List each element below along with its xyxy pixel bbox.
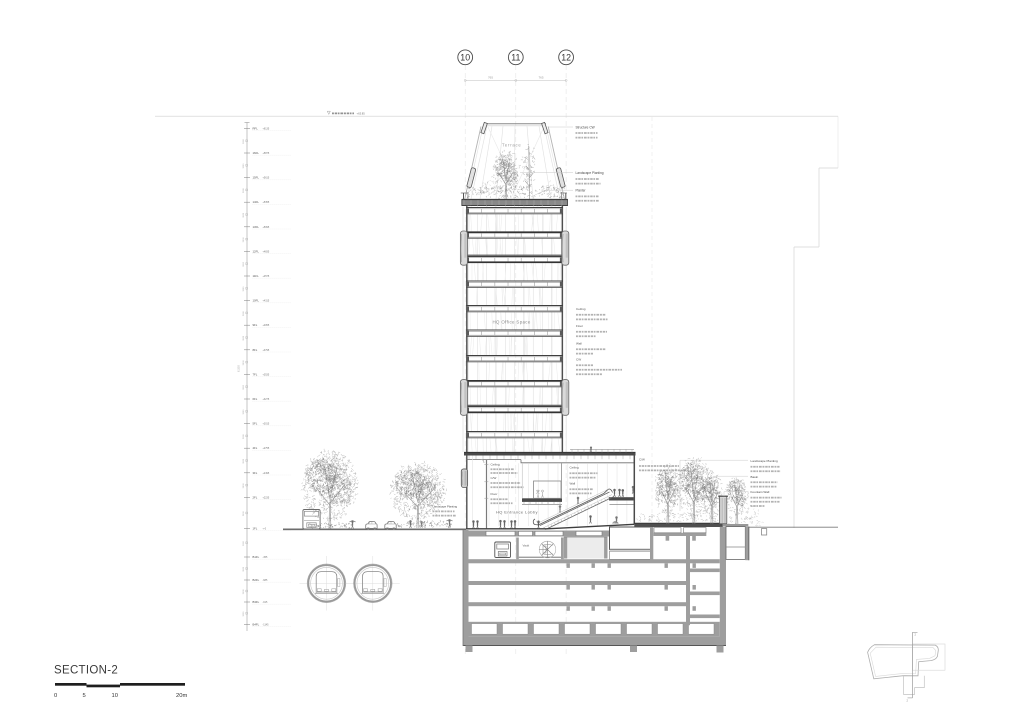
svg-text:Landscape Planting: Landscape Planting [751, 459, 778, 463]
svg-text:3600: 3600 [243, 589, 245, 595]
svg-text:61350: 61350 [238, 365, 241, 372]
svg-text:3600: 3600 [243, 611, 245, 617]
svg-text:Ceiling: Ceiling [570, 466, 580, 470]
svg-text:1FL: 1FL [253, 527, 258, 531]
svg-text:HQ Entrance Lobby: HQ Entrance Lobby [496, 510, 538, 515]
svg-text:B1FL: B1FL [253, 555, 260, 559]
svg-text:3600: 3600 [243, 261, 245, 267]
svg-text:3600: 3600 [243, 384, 245, 390]
svg-text:Floor: Floor [491, 492, 498, 496]
svg-text:+3015: +3015 [263, 423, 270, 426]
svg-text:+5355: +5355 [263, 201, 270, 204]
svg-text:Terrace: Terrace [502, 143, 522, 148]
svg-text:765: 765 [538, 75, 543, 79]
svg-text:Floor: Floor [576, 324, 583, 328]
svg-text:10: 10 [460, 52, 470, 62]
svg-text:13FL: 13FL [253, 225, 260, 229]
svg-text:2FL: 2FL [253, 495, 258, 499]
svg-text:3600: 3600 [243, 237, 245, 243]
svg-text:Planter: Planter [576, 189, 587, 193]
svg-text:B3FL: B3FL [253, 600, 260, 604]
svg-text:Vault: Vault [523, 544, 530, 548]
svg-text:Ceiling: Ceiling [491, 463, 501, 467]
svg-text:+4315: +4315 [263, 300, 270, 303]
svg-text:+2755: +2755 [263, 447, 270, 450]
svg-text:RFL: RFL [253, 127, 259, 131]
svg-text:3600: 3600 [243, 360, 245, 366]
svg-text:Ceiling: Ceiling [576, 307, 586, 311]
svg-text:Fountain Wall: Fountain Wall [751, 490, 770, 494]
svg-text:+3535: +3535 [263, 373, 270, 376]
svg-text:+2235: +2235 [263, 496, 270, 499]
svg-text:12: 12 [561, 52, 571, 62]
svg-text:4FL: 4FL [253, 446, 258, 450]
svg-text:11FL: 11FL [253, 274, 260, 278]
svg-text:12FL: 12FL [253, 249, 260, 253]
svg-text:3600: 3600 [243, 138, 245, 144]
svg-text:Wall: Wall [576, 341, 582, 345]
svg-text:Structure CW: Structure CW [576, 126, 595, 130]
svg-text:3600: 3600 [243, 511, 245, 517]
svg-text:3600: 3600 [243, 187, 245, 193]
svg-text:+3795: +3795 [263, 349, 270, 352]
svg-text:3600: 3600 [243, 286, 245, 292]
svg-text:-915: -915 [263, 601, 268, 604]
svg-text:Landscape Planting: Landscape Planting [576, 171, 604, 175]
svg-text:-685: -685 [263, 579, 268, 582]
svg-text:3600: 3600 [243, 335, 245, 341]
svg-text:0: 0 [54, 693, 57, 699]
svg-text:765: 765 [488, 75, 493, 79]
svg-text:11: 11 [511, 52, 520, 62]
svg-text:B4FL: B4FL [253, 623, 260, 627]
svg-text:3600: 3600 [243, 409, 245, 415]
svg-text:8FL: 8FL [253, 348, 258, 352]
svg-text:-1145: -1145 [263, 624, 270, 627]
svg-text:3600: 3600 [243, 458, 245, 464]
svg-text:+4575: +4575 [263, 275, 270, 278]
svg-text:3600: 3600 [243, 163, 245, 169]
svg-text:+3275: +3275 [263, 398, 270, 401]
svg-text:B2FL: B2FL [253, 578, 260, 582]
svg-text:Basin: Basin [751, 475, 759, 479]
svg-text:+6135: +6135 [263, 128, 270, 131]
svg-text:+5875: +5875 [263, 152, 270, 155]
svg-text:CW: CW [576, 357, 581, 361]
svg-text:3600: 3600 [243, 566, 245, 572]
svg-text:20m: 20m [176, 693, 187, 699]
svg-text:3600: 3600 [243, 433, 245, 439]
svg-text:3600: 3600 [243, 483, 245, 489]
svg-text:-455: -455 [263, 556, 268, 559]
svg-text:+5615: +5615 [263, 177, 270, 180]
svg-text:+2495: +2495 [263, 472, 270, 475]
svg-text:+4055: +4055 [263, 324, 270, 327]
svg-text:+5095: +5095 [263, 226, 270, 229]
svg-text:16FL: 16FL [253, 151, 260, 155]
svg-text:3600: 3600 [243, 212, 245, 218]
svg-text:C/W: C/W [491, 476, 497, 480]
svg-text:5: 5 [83, 693, 86, 699]
svg-text:C/W: C/W [639, 458, 645, 462]
svg-text:Landscape Planting: Landscape Planting [433, 505, 458, 509]
svg-text:6FL: 6FL [253, 397, 258, 401]
svg-text:3600: 3600 [243, 310, 245, 316]
svg-text:10FL: 10FL [253, 299, 260, 303]
svg-text:SECTION-2: SECTION-2 [54, 665, 118, 677]
svg-text:9FL: 9FL [253, 323, 258, 327]
svg-text:3600: 3600 [243, 540, 245, 546]
svg-text:+4835: +4835 [263, 250, 270, 253]
svg-text:10: 10 [112, 693, 118, 699]
svg-text:+63.85: +63.85 [357, 112, 366, 116]
svg-text:15FL: 15FL [253, 176, 260, 180]
svg-text:14FL: 14FL [253, 200, 260, 204]
svg-text:5FL: 5FL [253, 422, 258, 426]
svg-text:3FL: 3FL [253, 471, 258, 475]
svg-text:Wall: Wall [570, 482, 576, 486]
svg-text:HQ Office Space: HQ Office Space [493, 320, 531, 325]
svg-text:7FL: 7FL [253, 372, 258, 376]
